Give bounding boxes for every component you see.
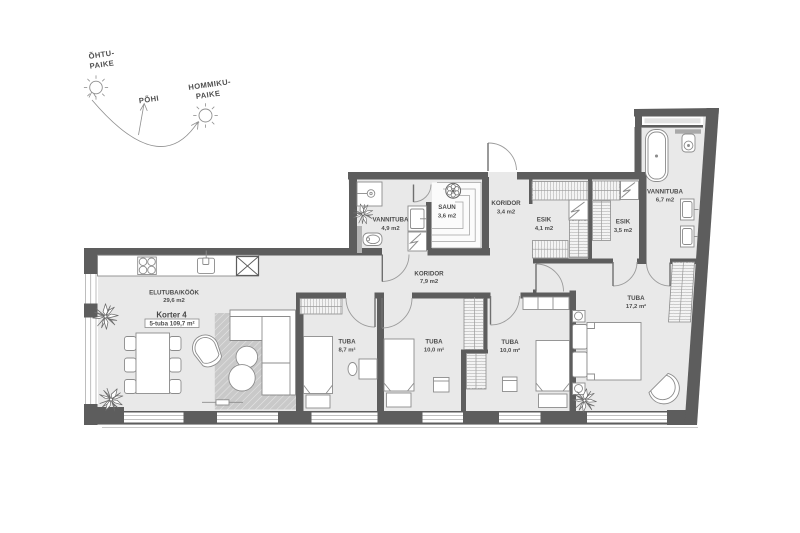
svg-text:VANNITUBA: VANNITUBA — [373, 217, 410, 224]
svg-text:8,7 m²: 8,7 m² — [338, 347, 355, 354]
svg-text:7,9 m2: 7,9 m2 — [420, 279, 439, 285]
svg-text:ELUTUBA/KÖÖK: ELUTUBA/KÖÖK — [149, 290, 199, 297]
svg-text:5-tuba 109,7 m²: 5-tuba 109,7 m² — [149, 321, 194, 328]
svg-text:4,9 m2: 4,9 m2 — [381, 226, 400, 232]
svg-text:TUBA: TUBA — [501, 339, 519, 346]
svg-text:SAUN: SAUN — [438, 204, 456, 211]
svg-text:VANNITUBA: VANNITUBA — [647, 189, 684, 196]
svg-text:KORIDOR: KORIDOR — [414, 270, 444, 277]
svg-text:3,4 m2: 3,4 m2 — [497, 210, 516, 216]
svg-text:TUBA: TUBA — [425, 339, 443, 346]
svg-text:4,1 m2: 4,1 m2 — [535, 226, 554, 232]
svg-text:ESIK: ESIK — [537, 217, 552, 224]
svg-text:3,6 m2: 3,6 m2 — [438, 214, 457, 220]
svg-text:10,0 m²: 10,0 m² — [424, 347, 444, 354]
svg-text:TUBA: TUBA — [338, 339, 356, 346]
svg-text:TUBA: TUBA — [627, 295, 645, 302]
svg-text:10,0 m²: 10,0 m² — [500, 347, 520, 354]
svg-text:29,6 m2: 29,6 m2 — [163, 298, 185, 304]
svg-text:6,7 m2: 6,7 m2 — [656, 198, 675, 204]
svg-text:ESIK: ESIK — [616, 219, 631, 226]
svg-text:Korter 4: Korter 4 — [156, 311, 187, 320]
svg-text:KORIDOR: KORIDOR — [491, 200, 521, 207]
svg-text:3,5 m2: 3,5 m2 — [614, 228, 633, 234]
svg-text:17,2 m²: 17,2 m² — [626, 303, 646, 310]
